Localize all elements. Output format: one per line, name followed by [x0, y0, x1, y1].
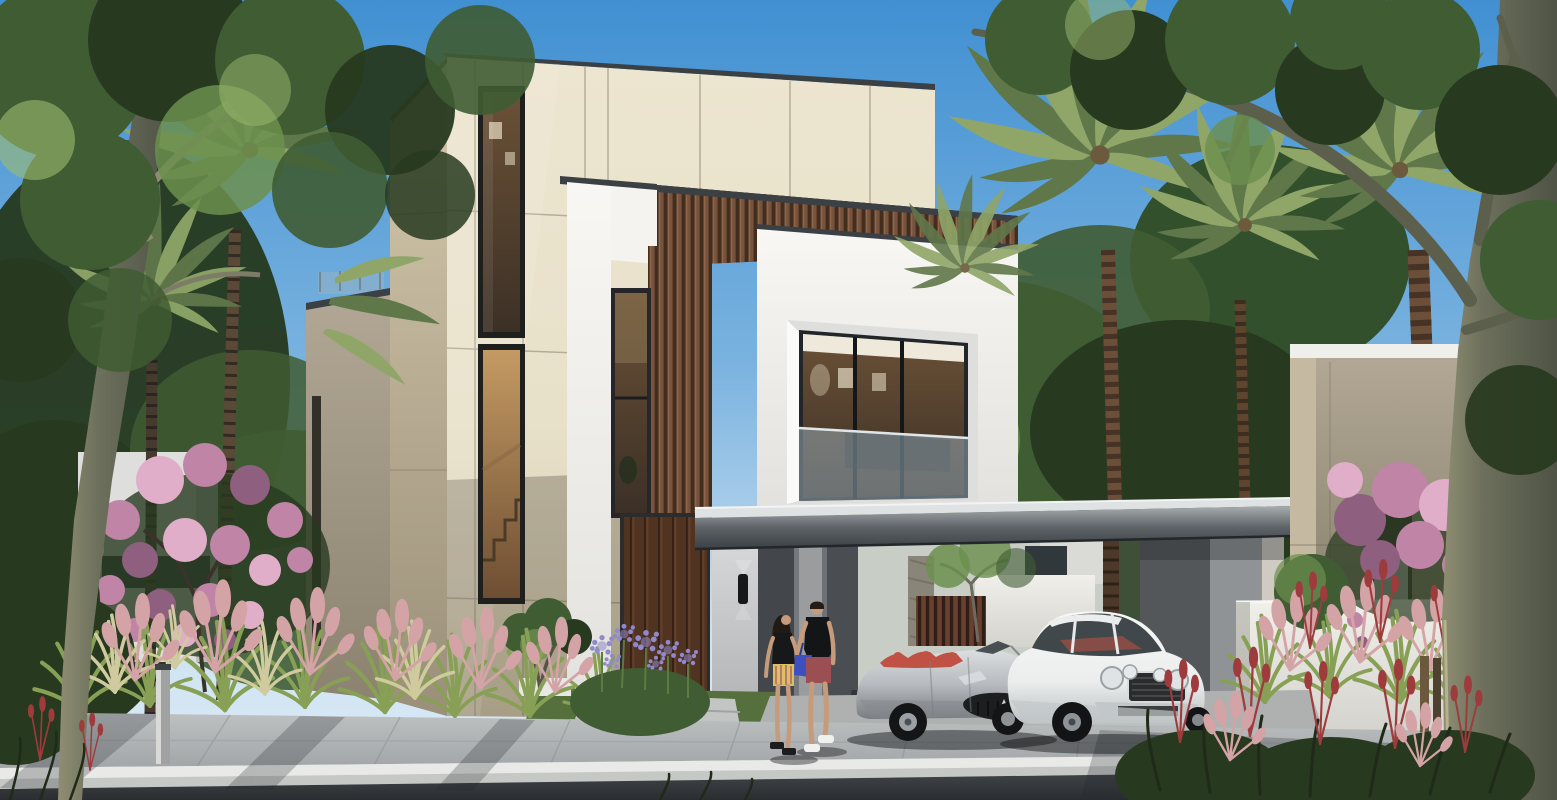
ground-floor-glazing [611, 288, 651, 518]
stair-window [478, 86, 525, 604]
glass-balustrade [799, 428, 968, 501]
villa-rendering [0, 0, 1557, 800]
scene-canvas [0, 0, 1557, 800]
bedroom-window [799, 330, 968, 501]
white-sneaker [804, 744, 820, 752]
bollard-light [155, 664, 171, 764]
man-shorts [806, 657, 831, 683]
